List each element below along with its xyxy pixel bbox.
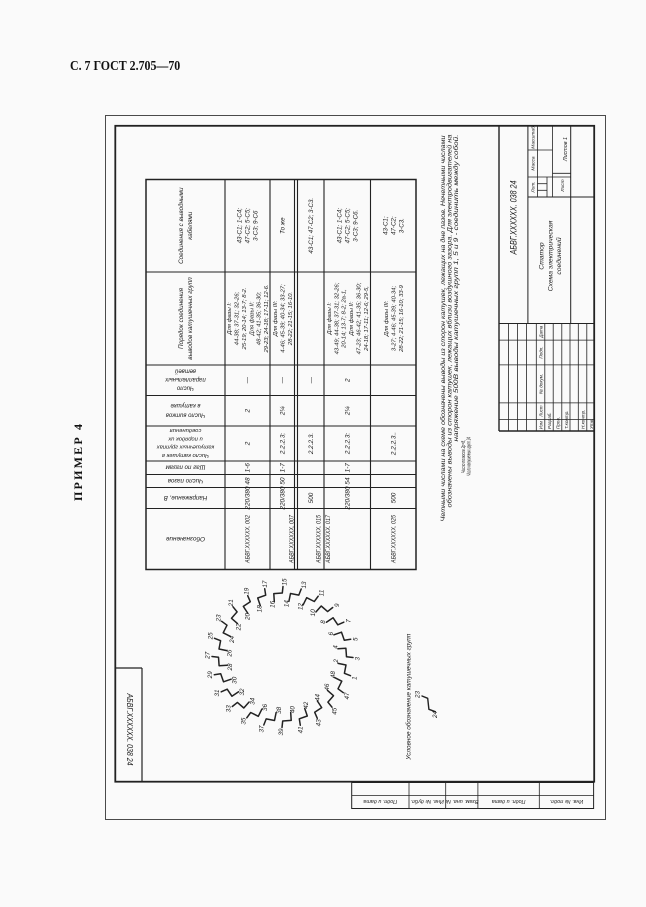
svg-text:17: 17	[262, 580, 269, 588]
svg-text:—: —	[308, 376, 315, 384]
svg-text:АБВГ.ХХХХХХ. 002: АБВГ.ХХХХХХ. 002	[245, 515, 252, 564]
svg-text:24-18; 17-11; 12-6; 29-5,: 24-18; 17-11; 12-6; 29-5,	[364, 286, 370, 352]
svg-text:Инв. № дубл.: Инв. № дубл.	[411, 798, 444, 804]
svg-text:28-22; 21-15; 16-10; 33-9: 28-22; 21-15; 16-10; 33-9	[399, 284, 405, 353]
svg-text:Н.контр.: Н.контр.	[581, 410, 586, 429]
svg-text:АБВГ.ХХХХХХ. 015: АБВГ.ХХХХХХ. 015	[316, 515, 323, 564]
svg-text:АБВГ.ХХХХХХ. 038 24: АБВГ.ХХХХХХ. 038 24	[125, 693, 134, 766]
svg-text:1-6: 1-6	[245, 463, 252, 473]
svg-text:32: 32	[239, 688, 246, 696]
svg-text:соединений: соединений	[555, 237, 563, 274]
svg-text:АБВГ.ХХХХХХ. 025: АБВГ.ХХХХХХ. 025	[391, 515, 398, 564]
svg-text:Статор: Статор	[539, 242, 546, 270]
svg-text:Порядок соединения: Порядок соединения	[177, 287, 185, 349]
svg-text:29: 29	[207, 671, 214, 680]
svg-text:11: 11	[319, 590, 326, 597]
svg-text:3: 3	[355, 656, 362, 660]
svg-text:—: —	[280, 376, 287, 384]
svg-text:35: 35	[241, 717, 248, 725]
svg-text:47-23; 46-42; 41-35; 36-30;: 47-23; 46-42; 41-35; 36-30;	[357, 282, 363, 354]
svg-text:28: 28	[227, 663, 234, 672]
svg-text:7: 7	[346, 619, 353, 623]
svg-text:50: 50	[280, 477, 287, 485]
svg-text:18: 18	[256, 605, 263, 613]
svg-text:42: 42	[303, 701, 310, 709]
svg-text:47-С2; 5-С5;: 47-С2; 5-С5;	[345, 208, 352, 244]
svg-text:22: 22	[236, 623, 243, 632]
svg-text:2: 2	[245, 408, 252, 413]
svg-text:2.2.2.3:: 2.2.2.3:	[345, 433, 352, 456]
svg-text:16: 16	[270, 600, 277, 608]
svg-text:31: 31	[214, 689, 221, 696]
svg-text:44: 44	[315, 694, 322, 702]
svg-text:46: 46	[324, 683, 331, 691]
svg-text:48: 48	[330, 671, 337, 679]
svg-text:220/380: 220/380	[245, 486, 252, 511]
svg-text:Схема электрическая: Схема электрическая	[547, 220, 554, 291]
svg-text:27: 27	[205, 651, 212, 660]
svg-text:6: 6	[328, 631, 335, 635]
svg-text:Взам. инв. №: Взам. инв. №	[445, 798, 479, 804]
svg-text:500: 500	[308, 492, 315, 503]
svg-text:47-С2; 5-С5;: 47-С2; 5-С5;	[245, 208, 252, 244]
svg-text:26: 26	[226, 649, 233, 658]
svg-text:соединения: соединения	[170, 427, 202, 433]
svg-text:43-С1; 47-С2; 3-С3.: 43-С1; 47-С2; 3-С3.	[308, 198, 315, 254]
svg-text:Число витков: Число витков	[166, 411, 206, 417]
svg-text:48: 48	[245, 477, 252, 485]
svg-text:23: 23	[216, 614, 223, 623]
svg-text:3-С3; 9-С6.: 3-С3; 9-С6.	[353, 210, 360, 242]
svg-text:Шаг по пазам: Шаг по пазам	[165, 464, 205, 471]
svg-text:АБВГ.ХХХХХХ. 007: АБВГ.ХХХХХХ. 007	[289, 515, 296, 564]
svg-text:выводов катушечных групп: выводов катушечных групп	[186, 277, 194, 360]
svg-text:2.2.2.3.: 2.2.2.3.	[308, 433, 315, 455]
svg-text:28-22; 21-15; 16-10.: 28-22; 21-15; 16-10.	[288, 292, 294, 346]
svg-text:13: 13	[301, 581, 308, 589]
svg-text:1-7: 1-7	[345, 463, 352, 473]
svg-text:14: 14	[284, 600, 291, 608]
svg-text:Дата: Дата	[539, 325, 544, 339]
svg-text:Для фазы III:: Для фазы III:	[384, 300, 390, 337]
svg-text:220/380: 220/380	[345, 486, 352, 511]
svg-text:500: 500	[391, 492, 398, 503]
svg-text:2¼: 2¼	[345, 406, 352, 417]
svg-text:Для фазы III:: Для фазы III:	[273, 300, 279, 337]
svg-text:20: 20	[245, 613, 252, 622]
svg-text:Лист: Лист	[539, 405, 544, 418]
svg-text:4: 4	[332, 645, 339, 649]
svg-text:Подп. и дата: Подп. и дата	[363, 798, 397, 804]
svg-text:Напряжение, В: Напряжение, В	[164, 494, 207, 501]
svg-text:43-49; 44-38; 37-31; 32-26;: 43-49; 44-38; 37-31; 32-26;	[334, 282, 340, 354]
svg-text:Т.контр.: Т.контр.	[564, 410, 569, 429]
svg-text:№ докум.: № докум.	[539, 374, 544, 394]
svg-text:8: 8	[320, 620, 327, 624]
svg-text:45: 45	[332, 707, 339, 715]
svg-text:и порядок их: и порядок их	[167, 435, 203, 441]
svg-text:4-46; 45-39; 40-34; 33-27;: 4-46; 45-39; 40-34; 33-27;	[280, 284, 286, 353]
svg-text:Для фазы II:: Для фазы II:	[349, 301, 355, 336]
svg-text:Пров.: Пров.	[556, 417, 561, 429]
svg-text:2¼: 2¼	[280, 406, 287, 417]
svg-text:Для фазы II:: Для фазы II:	[249, 301, 255, 336]
svg-text:33: 33	[226, 705, 233, 713]
svg-text:23: 23	[415, 691, 422, 700]
svg-text:Число: Число	[176, 385, 194, 391]
svg-text:24: 24	[229, 635, 236, 644]
svg-text:54: 54	[345, 477, 352, 485]
svg-text:параллельных: параллельных	[164, 376, 205, 382]
svg-text:43: 43	[316, 719, 323, 727]
svg-text:Изм: Изм	[539, 421, 544, 429]
svg-text:катушечных группах: катушечных группах	[156, 444, 215, 450]
svg-text:25: 25	[208, 632, 215, 641]
svg-text:36: 36	[262, 704, 269, 712]
svg-text:ветвей: ветвей	[174, 368, 196, 375]
svg-text:2: 2	[333, 659, 340, 664]
svg-text:21: 21	[228, 599, 235, 607]
svg-text:48-42; 41-35; 36-30;: 48-42; 41-35; 36-30;	[257, 291, 263, 345]
svg-text:10: 10	[310, 609, 317, 617]
svg-text:Разраб.: Разраб.	[547, 412, 552, 429]
svg-text:12: 12	[297, 603, 304, 611]
svg-text:Для фазы I:: Для фазы I:	[327, 302, 333, 336]
svg-text:5: 5	[353, 637, 360, 641]
svg-text:2.2.2.3;: 2.2.2.3;	[280, 433, 287, 456]
svg-text:37: 37	[259, 725, 266, 733]
svg-text:19: 19	[244, 587, 251, 595]
svg-text:То же: То же	[280, 217, 287, 234]
svg-text:—: —	[245, 376, 252, 384]
svg-text:2: 2	[245, 441, 252, 446]
svg-text:Лит.: Лит.	[531, 181, 537, 193]
svg-text:43-С1;: 43-С1;	[383, 216, 390, 235]
svg-text:44-38; 37-31; 32-26;: 44-38; 37-31; 32-26;	[235, 291, 241, 345]
svg-text:Подп.: Подп.	[539, 346, 544, 358]
svg-text:Число пазов: Число пазов	[167, 477, 203, 484]
svg-text:43-С1; 1-С4;: 43-С1; 1-С4;	[237, 208, 244, 244]
svg-text:напряжение 500В выводы катушеч: напряжение 500В выводы катушечных групп …	[452, 134, 460, 441]
svg-text:3-С3; 9-С6: 3-С3; 9-С6	[253, 210, 260, 241]
svg-text:АБВГ.ХХХХХХ. 038 24: АБВГ.ХХХХХХ. 038 24	[509, 181, 519, 256]
svg-text:41: 41	[298, 726, 305, 733]
svg-text:Условное обозначение катушечны: Условное обозначение катушечных групп	[404, 633, 412, 760]
svg-text:Для фазы I:: Для фазы I:	[227, 302, 233, 336]
svg-text:39: 39	[278, 728, 285, 736]
svg-text:Число катушечных групп 24: Число катушечных групп 24	[467, 437, 473, 476]
svg-text:Обозначение: Обозначение	[165, 535, 205, 543]
svg-text:АБВГ.ХХХХХХ. 017: АБВГ.ХХХХХХ. 017	[325, 515, 332, 564]
svg-text:40: 40	[290, 706, 297, 714]
svg-text:Масштаб: Масштаб	[531, 126, 537, 149]
svg-text:25-19; 20-14; 13-7; 8-2.: 25-19; 20-14; 13-7; 8-2.	[242, 288, 248, 351]
svg-text:15: 15	[281, 578, 288, 586]
svg-text:1: 1	[352, 676, 359, 680]
svg-text:47-С2;: 47-С2;	[391, 216, 398, 235]
svg-text:47: 47	[344, 692, 351, 700]
svg-text:Утв.: Утв.	[589, 419, 594, 429]
svg-text:Листов 1: Листов 1	[563, 137, 569, 162]
svg-text:20-14; 13-7; 8-2; 2а-1,: 20-14; 13-7; 8-2; 2а-1,	[342, 289, 348, 349]
svg-text:Инв. № подл.: Инв. № подл.	[550, 798, 583, 804]
svg-text:220/380: 220/380	[280, 486, 287, 511]
svg-text:Соединения с выводными: Соединения с выводными	[177, 187, 185, 264]
svg-text:43-С1; 1-С4;: 43-С1; 1-С4;	[337, 208, 344, 244]
svg-text:29-23; 24-18; 17-11; 12-6.: 29-23; 24-18; 17-11; 12-6.	[264, 284, 270, 353]
svg-text:9: 9	[334, 603, 341, 607]
svg-text:1-7: 1-7	[280, 463, 287, 473]
svg-text:24: 24	[432, 711, 439, 720]
svg-text:2.2.2.3..: 2.2.2.3..	[391, 432, 398, 456]
svg-text:Число катушек в: Число катушек в	[162, 452, 209, 458]
svg-text:30: 30	[232, 676, 239, 684]
svg-text:кабелями: кабелями	[186, 211, 194, 240]
svg-text:3-27; 4-46; 45-39; 40-34;: 3-27; 4-46; 45-39; 40-34;	[391, 286, 397, 352]
svg-text:38: 38	[276, 706, 283, 714]
svg-text:Масса: Масса	[531, 156, 537, 171]
svg-text:34: 34	[250, 697, 257, 705]
svg-text:Подп. и дата: Подп. и дата	[492, 798, 526, 804]
svg-text:в катушке: в катушке	[170, 402, 201, 408]
svg-text:3-С3.: 3-С3.	[399, 218, 406, 233]
svg-text:Лист: Лист	[560, 179, 566, 192]
svg-text:2: 2	[345, 378, 352, 383]
